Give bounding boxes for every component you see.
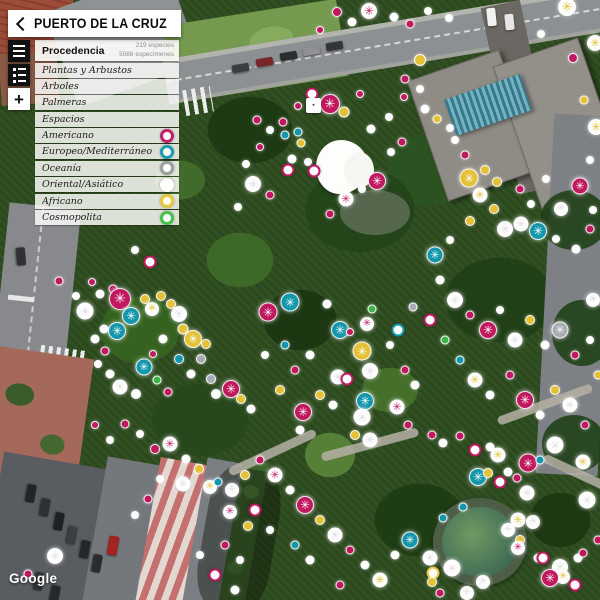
map-marker[interactable]: [569, 579, 582, 592]
map-marker[interactable]: [150, 444, 160, 454]
map-marker[interactable]: ✳: [360, 317, 374, 331]
map-marker[interactable]: [446, 124, 454, 132]
map-marker[interactable]: [568, 53, 578, 63]
map-marker[interactable]: [527, 200, 535, 208]
map-marker[interactable]: ✳: [354, 409, 371, 426]
map-marker[interactable]: [196, 551, 204, 559]
map-marker[interactable]: ✳: [77, 303, 94, 320]
category-label: Palmeras: [42, 97, 174, 108]
map-marker[interactable]: [483, 468, 493, 478]
map-marker[interactable]: [159, 335, 168, 344]
map-marker[interactable]: [88, 278, 96, 286]
legend-title: Procedencia: [42, 45, 104, 57]
map-marker[interactable]: ✳: [476, 575, 490, 589]
legend-origin-row[interactable]: Americano: [35, 128, 179, 143]
map-marker[interactable]: [401, 366, 410, 375]
map-marker[interactable]: ✳: [516, 391, 534, 409]
map-marker[interactable]: [594, 536, 600, 545]
map-app: ✳✳✳✳✳✳✳✳✳✳✳✳✳✳✳✳✳✳✳✳✳✳✳✳✳✳✳✳✳✳✳✳✳✳✳✳✳✳✳✳…: [0, 0, 600, 600]
map-marker[interactable]: [266, 126, 274, 134]
origin-color-ring: [160, 145, 174, 159]
map-marker[interactable]: ✳: [259, 303, 278, 322]
map-marker[interactable]: ✳: [184, 330, 202, 348]
map-marker[interactable]: [256, 143, 264, 151]
map-marker[interactable]: ✳: [514, 217, 529, 232]
map-marker[interactable]: [266, 526, 274, 534]
map-marker[interactable]: [211, 389, 221, 399]
map-marker[interactable]: ✳: [520, 486, 535, 501]
category-label: Plantas y Arbustos: [42, 65, 174, 76]
chevron-left-icon: [15, 16, 29, 30]
map-marker[interactable]: ✳: [552, 322, 569, 339]
map-marker[interactable]: ✳: [339, 192, 354, 207]
map-marker[interactable]: [296, 426, 305, 435]
map-marker[interactable]: [424, 314, 437, 327]
origin-color-ring: [160, 178, 174, 192]
origin-label: Cosmopolita: [42, 212, 160, 223]
map-marker[interactable]: [390, 13, 399, 22]
map-marker[interactable]: [436, 276, 445, 285]
map-marker[interactable]: [131, 389, 141, 399]
map-marker[interactable]: ✳: [572, 178, 589, 195]
map-marker[interactable]: [465, 216, 475, 226]
map-marker[interactable]: [91, 421, 99, 429]
map-marker[interactable]: [196, 354, 206, 364]
map-marker[interactable]: [346, 546, 355, 555]
map-marker[interactable]: ✳: [356, 392, 374, 410]
map-marker[interactable]: [194, 464, 204, 474]
map-marker[interactable]: [106, 370, 115, 379]
map-marker[interactable]: [433, 115, 442, 124]
map-marker[interactable]: [279, 118, 288, 127]
map-marker[interactable]: ✳: [320, 94, 340, 114]
map-marker[interactable]: [451, 136, 459, 144]
map-marker[interactable]: [247, 405, 256, 414]
map-marker[interactable]: [367, 125, 376, 134]
map-marker[interactable]: [513, 474, 522, 483]
list-button[interactable]: [8, 64, 30, 86]
legend-origin-row[interactable]: Cosmopolita: [35, 210, 179, 225]
legend-origin-row[interactable]: Oceanía: [35, 161, 179, 176]
map-marker[interactable]: [187, 370, 196, 379]
map-marker[interactable]: [261, 351, 269, 359]
map-marker[interactable]: [401, 75, 410, 84]
map-marker[interactable]: [266, 191, 275, 200]
zoom-in-button[interactable]: +: [8, 88, 30, 110]
map-marker[interactable]: [209, 569, 222, 582]
map-marker[interactable]: [72, 292, 80, 300]
origin-label: Europeo/Mediterráneo: [42, 146, 160, 157]
map-marker[interactable]: ✳: [541, 569, 559, 587]
map-marker[interactable]: [121, 420, 130, 429]
origin-label: Africano: [42, 196, 160, 207]
map-marker[interactable]: [496, 306, 504, 314]
origin-color-ring: [160, 194, 174, 208]
map-marker[interactable]: [94, 360, 102, 368]
menu-button[interactable]: [8, 40, 30, 62]
map-marker[interactable]: [571, 351, 580, 360]
map-marker[interactable]: [589, 206, 597, 214]
map-marker[interactable]: [411, 381, 420, 390]
map-marker[interactable]: [456, 356, 465, 365]
map-marker[interactable]: [275, 385, 285, 395]
map-marker[interactable]: [91, 335, 100, 344]
map-marker[interactable]: ✳: [163, 437, 178, 452]
map-marker[interactable]: ✳: [245, 176, 261, 192]
map-marker[interactable]: [326, 210, 335, 219]
map-marker[interactable]: [586, 336, 594, 344]
legend-origin-row[interactable]: Europeo/Mediterráneo: [35, 144, 179, 159]
origin-label: Oceanía: [42, 163, 160, 174]
legend-category-row[interactable]: Plantas y Arbustos: [35, 63, 179, 78]
map-marker[interactable]: [461, 151, 470, 160]
map-marker[interactable]: [306, 351, 315, 360]
map-marker[interactable]: [100, 325, 109, 334]
map-marker[interactable]: [164, 388, 173, 397]
map-marker[interactable]: ✳: [294, 403, 312, 421]
map-marker[interactable]: ✳: [579, 492, 596, 509]
map-marker[interactable]: [236, 394, 246, 404]
map-marker[interactable]: [249, 504, 262, 517]
map-marker[interactable]: ✳: [526, 515, 540, 529]
map-marker[interactable]: [144, 256, 157, 269]
map-marker[interactable]: [579, 549, 588, 558]
map-marker[interactable]: ✳: [223, 505, 237, 519]
map-marker[interactable]: [361, 561, 370, 570]
map-marker[interactable]: [339, 107, 350, 118]
map-marker[interactable]: ✳: [113, 380, 128, 395]
map-marker[interactable]: [414, 54, 426, 66]
google-logo[interactable]: Google: [9, 571, 57, 586]
map-marker[interactable]: [231, 586, 240, 595]
map-marker[interactable]: [221, 541, 230, 550]
map-marker[interactable]: [315, 390, 325, 400]
map-marker[interactable]: [572, 245, 581, 254]
map-marker[interactable]: ✳: [402, 532, 419, 549]
map-marker[interactable]: [294, 102, 302, 110]
map-marker[interactable]: [323, 300, 332, 309]
map-marker[interactable]: [201, 339, 211, 349]
map-marker[interactable]: ✳: [586, 293, 600, 307]
map-marker[interactable]: [356, 90, 364, 98]
map-marker[interactable]: ✳: [529, 222, 547, 240]
map-marker[interactable]: [144, 495, 153, 504]
map-marker[interactable]: [96, 290, 105, 299]
map-marker[interactable]: [581, 421, 590, 430]
map-marker[interactable]: [586, 225, 595, 234]
map-marker[interactable]: ✳: [361, 3, 377, 19]
legend-category-row[interactable]: Espacios: [35, 112, 179, 127]
map-marker[interactable]: ✳: [268, 468, 283, 483]
map-marker[interactable]: [486, 443, 495, 452]
map-marker[interactable]: [153, 376, 162, 385]
map-marker[interactable]: [101, 347, 110, 356]
map-marker[interactable]: [537, 552, 550, 565]
map-marker[interactable]: [336, 581, 345, 590]
map-marker[interactable]: ✳: [47, 548, 63, 564]
map-marker[interactable]: [459, 503, 468, 512]
map-marker[interactable]: [536, 456, 545, 465]
map-marker[interactable]: [282, 164, 295, 177]
legend-stats: 219 especies 5088 especímenes: [119, 42, 174, 58]
map-marker[interactable]: ✳: [497, 221, 513, 237]
map-marker[interactable]: ✳: [460, 169, 479, 188]
map-marker[interactable]: ✳: [328, 528, 343, 543]
map-marker[interactable]: [516, 185, 525, 194]
map-marker[interactable]: [446, 236, 454, 244]
map-marker[interactable]: [368, 305, 377, 314]
map-marker[interactable]: [243, 521, 253, 531]
map-marker[interactable]: ✳: [460, 586, 474, 600]
plus-icon: +: [14, 91, 24, 108]
map-marker[interactable]: [492, 177, 502, 187]
map-marker[interactable]: [106, 436, 114, 444]
map-marker[interactable]: [486, 391, 495, 400]
map-marker[interactable]: [346, 328, 354, 336]
map-marker[interactable]: ✳: [171, 306, 187, 322]
map-marker[interactable]: [386, 341, 394, 349]
map-marker[interactable]: ✳: [145, 302, 159, 316]
map-marker[interactable]: [392, 324, 405, 337]
map-marker[interactable]: [156, 475, 164, 483]
legend-origin-row[interactable]: Oriental/Asiático: [35, 177, 179, 192]
map-marker[interactable]: [594, 371, 600, 380]
map-marker[interactable]: [480, 165, 490, 175]
category-list: Plantas y ArbustosÁrbolesPalmerasEspacio…: [35, 63, 179, 127]
map-marker[interactable]: [409, 303, 418, 312]
map-marker[interactable]: [55, 277, 64, 286]
header: PUERTO DE LA CRUZ: [8, 10, 181, 37]
map-marker[interactable]: ✳: [296, 496, 314, 514]
map-marker[interactable]: [348, 18, 357, 27]
origin-list: AmericanoEuropeo/MediterráneoOceaníaOrie…: [35, 128, 179, 225]
map-marker[interactable]: [489, 204, 499, 214]
map-marker[interactable]: [286, 486, 295, 495]
legend-origin-row[interactable]: Africano: [35, 194, 179, 209]
map-marker[interactable]: [441, 336, 450, 345]
legend-category-row[interactable]: Árboles: [35, 79, 179, 94]
map-marker[interactable]: [445, 14, 453, 22]
map-marker[interactable]: [439, 439, 448, 448]
map-marker[interactable]: ✳: [473, 188, 488, 203]
legend-header[interactable]: Procedencia 219 especies 5088 especímene…: [35, 40, 179, 61]
map-marker[interactable]: [466, 311, 475, 320]
map-marker[interactable]: ✳: [468, 373, 483, 388]
map-marker[interactable]: [385, 113, 393, 121]
category-label: Árboles: [42, 81, 174, 92]
map-marker[interactable]: [391, 551, 400, 560]
map-marker[interactable]: [206, 374, 216, 384]
map-marker[interactable]: [494, 476, 507, 489]
page-title: PUERTO DE LA CRUZ: [34, 16, 167, 31]
map-marker[interactable]: [436, 589, 445, 598]
map-marker[interactable]: ✳: [508, 333, 523, 348]
map-marker[interactable]: [214, 478, 223, 487]
map-marker[interactable]: [242, 160, 250, 168]
map-marker[interactable]: ✳: [122, 307, 140, 325]
map-marker[interactable]: ✳: [176, 477, 191, 492]
map-marker[interactable]: ✳: [427, 247, 444, 264]
map-marker[interactable]: [341, 373, 354, 386]
map-marker[interactable]: [131, 511, 139, 519]
back-button[interactable]: [8, 10, 34, 37]
map-marker[interactable]: ✳: [447, 292, 463, 308]
map-marker[interactable]: ✳: [563, 398, 578, 413]
map-marker[interactable]: [586, 156, 594, 164]
map-marker[interactable]: [136, 430, 144, 438]
origin-color-ring: [160, 211, 174, 225]
map-marker[interactable]: [424, 7, 432, 15]
map-marker[interactable]: [550, 385, 560, 395]
map-marker[interactable]: [234, 203, 242, 211]
map-marker[interactable]: [174, 354, 184, 364]
origin-label: Oriental/Asiático: [42, 179, 160, 190]
legend-category-row[interactable]: Palmeras: [35, 95, 179, 110]
map-marker[interactable]: [398, 138, 407, 147]
map-marker[interactable]: [240, 470, 250, 480]
map-marker[interactable]: ✳: [225, 483, 239, 497]
map-marker[interactable]: ✳: [390, 400, 405, 415]
map-marker[interactable]: [504, 468, 513, 477]
specimen-count: 5088 especímenes: [119, 51, 174, 58]
map-marker[interactable]: ✳: [444, 560, 461, 577]
map-marker[interactable]: [253, 116, 262, 125]
map-marker[interactable]: [149, 350, 157, 358]
map-marker[interactable]: [506, 371, 515, 380]
map-marker[interactable]: ✳: [501, 523, 515, 537]
hamburger-icon: [13, 45, 25, 47]
map-marker[interactable]: [439, 514, 448, 523]
map-marker[interactable]: ✳: [108, 322, 126, 340]
map-marker[interactable]: [281, 341, 290, 350]
map-marker[interactable]: [291, 541, 300, 550]
map-marker[interactable]: ✳: [479, 321, 497, 339]
map-marker[interactable]: ✳: [547, 437, 564, 454]
map-marker[interactable]: ✳: [576, 455, 591, 470]
map-marker[interactable]: [400, 93, 408, 101]
map-marker[interactable]: [427, 577, 437, 587]
map-marker[interactable]: [416, 85, 424, 93]
origin-label: Americano: [42, 130, 160, 141]
map-marker[interactable]: ✳: [423, 551, 438, 566]
map-marker[interactable]: [358, 185, 366, 193]
origin-color-ring: [160, 129, 174, 143]
map-marker[interactable]: ✳: [558, 0, 576, 16]
map-marker[interactable]: [552, 235, 560, 243]
map-marker[interactable]: [542, 175, 550, 183]
map-marker[interactable]: [256, 456, 265, 465]
map-marker[interactable]: [580, 96, 589, 105]
map-marker[interactable]: [541, 341, 550, 350]
map-marker[interactable]: [406, 20, 415, 29]
map-marker[interactable]: ✳: [511, 541, 525, 555]
map-marker[interactable]: [182, 455, 191, 464]
origin-color-ring: [160, 161, 174, 175]
map-marker[interactable]: [297, 139, 306, 148]
list-icon: [13, 68, 26, 71]
map-marker[interactable]: [387, 148, 395, 156]
species-count: 219 especies: [136, 42, 174, 49]
legend-panel: Procedencia 219 especies 5088 especímene…: [35, 40, 179, 226]
map-marker[interactable]: [291, 366, 300, 375]
map-marker[interactable]: [315, 515, 325, 525]
map-marker[interactable]: [350, 430, 360, 440]
map-marker[interactable]: [537, 30, 545, 38]
map-marker[interactable]: [236, 556, 244, 564]
map-marker[interactable]: ✳: [519, 454, 538, 473]
category-label: Espacios: [42, 114, 174, 125]
map-marker[interactable]: [456, 432, 465, 441]
map-marker[interactable]: ✳: [587, 35, 600, 51]
map-marker[interactable]: [332, 7, 342, 17]
map-marker[interactable]: [428, 431, 437, 440]
map-marker[interactable]: [536, 411, 545, 420]
map-marker[interactable]: [404, 421, 413, 430]
map-marker[interactable]: ✳: [588, 119, 600, 135]
poi-marker[interactable]: ▪: [306, 98, 321, 113]
map-marker[interactable]: [294, 128, 303, 137]
map-marker[interactable]: [306, 556, 315, 565]
map-marker[interactable]: ✳: [373, 573, 388, 588]
map-marker[interactable]: [156, 291, 166, 301]
map-marker[interactable]: [281, 131, 290, 140]
map-marker[interactable]: ✳: [363, 433, 378, 448]
map-marker[interactable]: [421, 105, 430, 114]
map-marker[interactable]: [316, 26, 324, 34]
map-marker[interactable]: [308, 165, 321, 178]
map-marker[interactable]: [329, 401, 338, 410]
map-marker[interactable]: [288, 155, 297, 164]
map-marker[interactable]: ✳: [353, 342, 372, 361]
map-marker[interactable]: ✳: [368, 172, 386, 190]
map-marker[interactable]: [469, 444, 482, 457]
map-marker[interactable]: [525, 315, 535, 325]
map-marker[interactable]: ✳: [554, 202, 568, 216]
map-marker[interactable]: ✳: [281, 293, 300, 312]
map-marker[interactable]: ✳: [136, 359, 153, 376]
map-marker[interactable]: ✳: [362, 363, 378, 379]
map-marker[interactable]: [131, 246, 139, 254]
